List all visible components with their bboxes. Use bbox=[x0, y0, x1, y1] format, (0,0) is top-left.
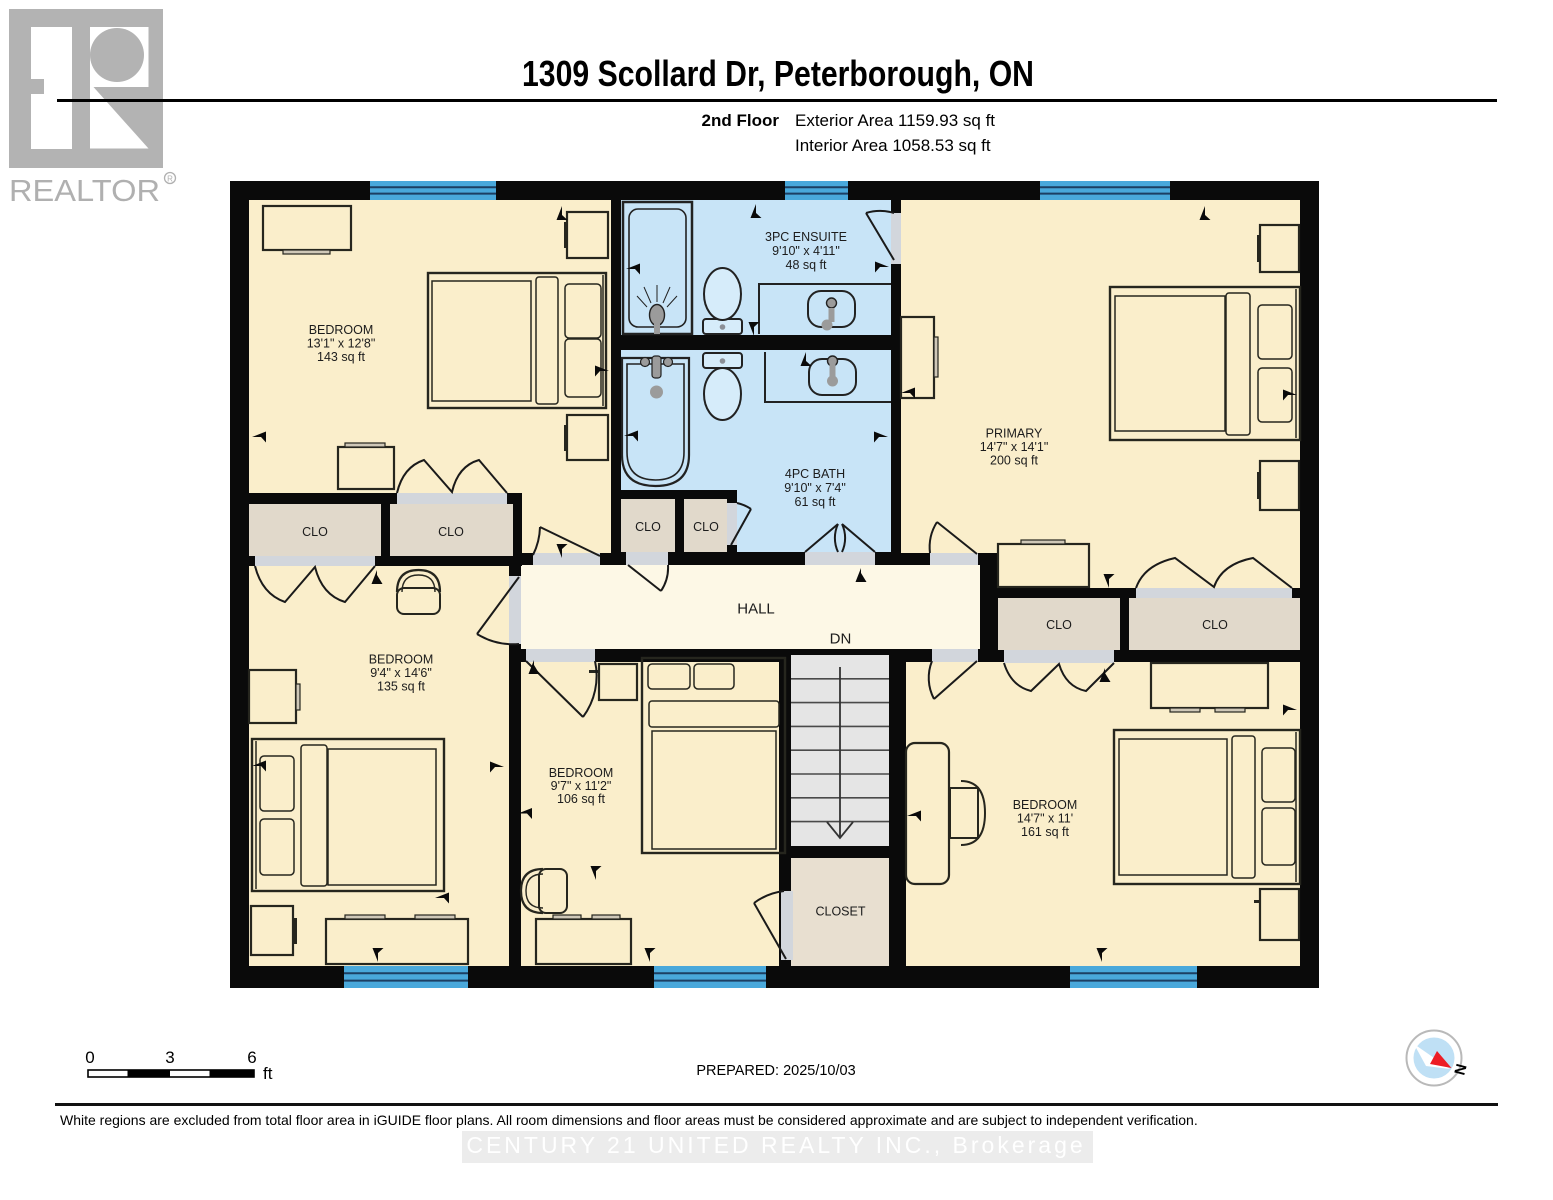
svg-text:BEDROOM: BEDROOM bbox=[1013, 798, 1078, 812]
svg-text:PRIMARY: PRIMARY bbox=[986, 427, 1043, 441]
svg-text:CENTURY 21 UNITED REALTY INC.,: CENTURY 21 UNITED REALTY INC., Brokerage bbox=[466, 1132, 1085, 1158]
svg-text:2nd Floor: 2nd Floor bbox=[702, 111, 780, 130]
svg-text:48 sq ft: 48 sq ft bbox=[786, 258, 828, 272]
svg-text:PREPARED: 2025/10/03: PREPARED: 2025/10/03 bbox=[696, 1063, 855, 1079]
svg-text:White regions are excluded fro: White regions are excluded from total fl… bbox=[60, 1112, 1198, 1128]
svg-text:161 sq ft: 161 sq ft bbox=[1021, 825, 1069, 839]
svg-text:BEDROOM: BEDROOM bbox=[309, 323, 374, 337]
svg-text:14'7" x 11': 14'7" x 11' bbox=[1017, 812, 1073, 826]
svg-text:DN: DN bbox=[830, 631, 852, 648]
svg-text:9'10" x 4'11": 9'10" x 4'11" bbox=[772, 244, 840, 258]
svg-text:CLO: CLO bbox=[302, 525, 328, 539]
svg-text:BEDROOM: BEDROOM bbox=[549, 766, 614, 780]
svg-text:9'7" x 11'2": 9'7" x 11'2" bbox=[551, 779, 612, 793]
svg-text:9'10" x 7'4": 9'10" x 7'4" bbox=[784, 481, 846, 495]
svg-text:Interior Area 1058.53 sq ft: Interior Area 1058.53 sq ft bbox=[795, 136, 991, 155]
svg-text:4PC BATH: 4PC BATH bbox=[785, 467, 845, 481]
svg-text:CLO: CLO bbox=[438, 525, 464, 539]
svg-text:CLOSET: CLOSET bbox=[815, 905, 865, 919]
svg-text:13'1" x 12'8": 13'1" x 12'8" bbox=[307, 337, 376, 351]
svg-text:6: 6 bbox=[247, 1048, 256, 1067]
svg-text:CLO: CLO bbox=[693, 520, 719, 534]
svg-text:BEDROOM: BEDROOM bbox=[369, 653, 434, 667]
svg-text:14'7" x 14'1": 14'7" x 14'1" bbox=[980, 440, 1049, 454]
svg-text:CLO: CLO bbox=[1202, 618, 1228, 632]
svg-text:Exterior Area 1159.93 sq ft: Exterior Area 1159.93 sq ft bbox=[795, 111, 995, 130]
svg-text:HALL: HALL bbox=[737, 601, 775, 618]
svg-text:0: 0 bbox=[85, 1048, 94, 1067]
svg-text:3PC ENSUITE: 3PC ENSUITE bbox=[765, 230, 847, 244]
svg-text:R: R bbox=[167, 175, 173, 184]
svg-text:106 sq ft: 106 sq ft bbox=[557, 792, 605, 806]
svg-text:143 sq ft: 143 sq ft bbox=[317, 350, 365, 364]
svg-text:3: 3 bbox=[165, 1048, 174, 1067]
svg-text:1309 Scollard Dr, Peterborough: 1309 Scollard Dr, Peterborough, ON bbox=[522, 53, 1034, 94]
svg-text:ft: ft bbox=[263, 1064, 273, 1083]
svg-text:200 sq ft: 200 sq ft bbox=[990, 454, 1038, 468]
svg-text:CLO: CLO bbox=[1046, 618, 1072, 632]
svg-text:135 sq ft: 135 sq ft bbox=[377, 680, 425, 694]
svg-text:REALTOR: REALTOR bbox=[9, 173, 160, 208]
svg-text:61 sq ft: 61 sq ft bbox=[795, 495, 837, 509]
svg-text:9'4" x 14'6": 9'4" x 14'6" bbox=[370, 666, 432, 680]
svg-text:CLO: CLO bbox=[635, 520, 661, 534]
